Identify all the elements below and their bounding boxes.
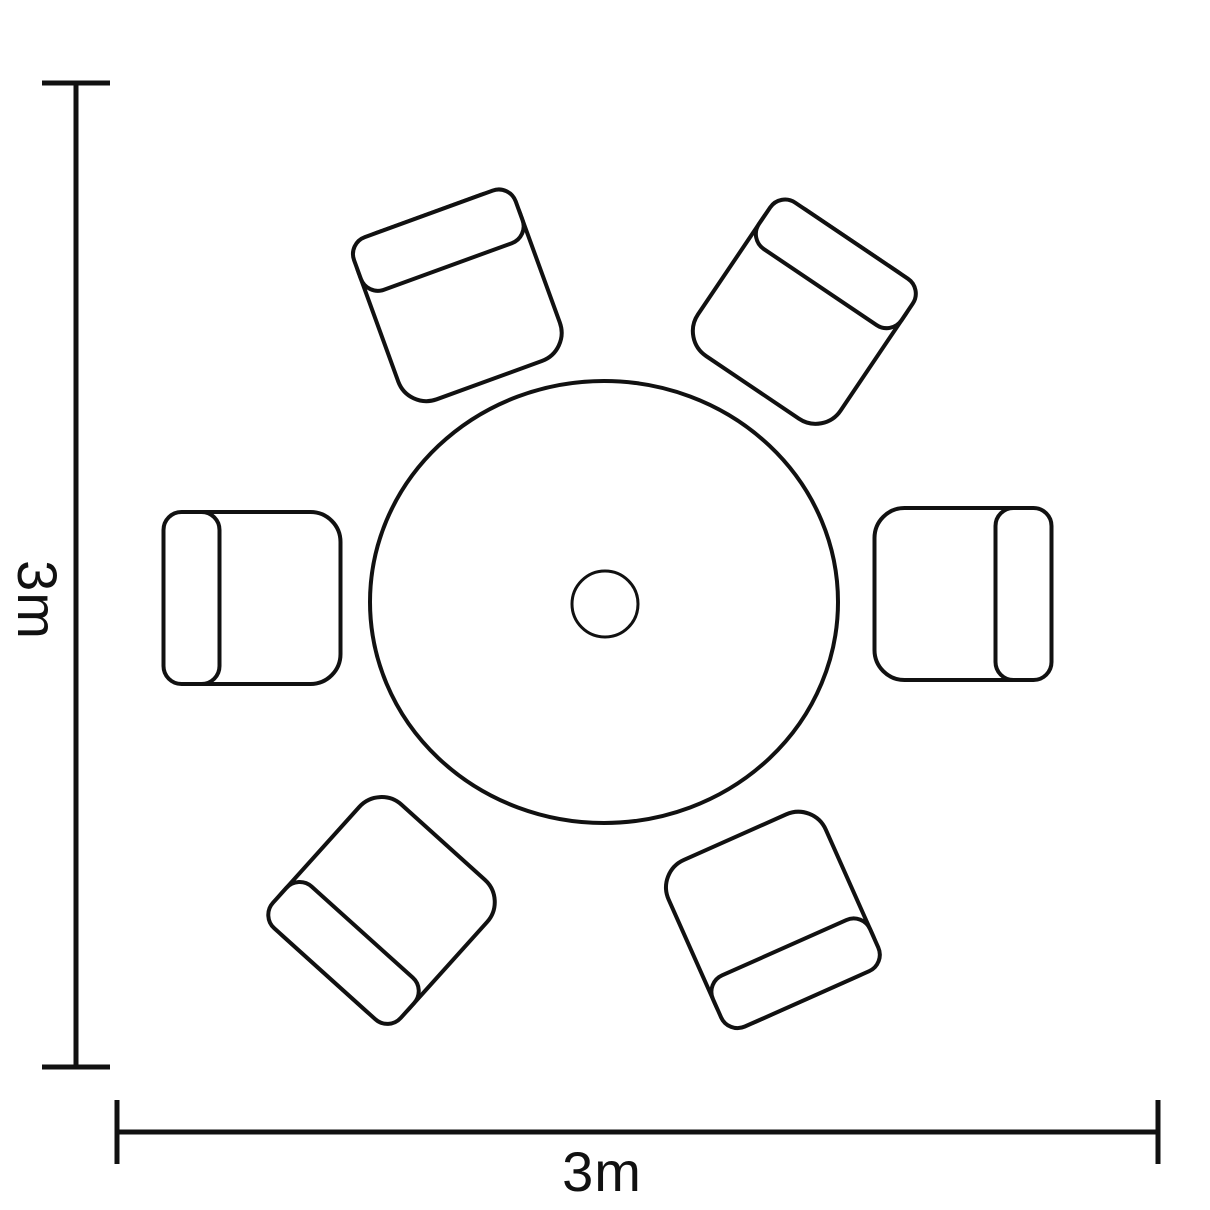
floor-plan-diagram: 3m 3m — [0, 0, 1210, 1210]
chair-right — [875, 508, 1052, 680]
chair-backrest — [996, 508, 1052, 680]
floor-plan-canvas: 3m 3m — [0, 0, 1210, 1210]
parasol-hole — [572, 571, 638, 637]
chair-bottom-left — [261, 785, 507, 1032]
width-dimension-label: 3m — [562, 1140, 642, 1203]
round-table — [370, 381, 838, 823]
chair-backrest — [164, 512, 220, 684]
chair-top-right — [681, 193, 923, 436]
height-dimension-label: 3m — [6, 560, 69, 640]
chair-left — [164, 512, 341, 684]
chair-top-left — [348, 184, 570, 409]
chair-bottom-right — [656, 802, 885, 1034]
